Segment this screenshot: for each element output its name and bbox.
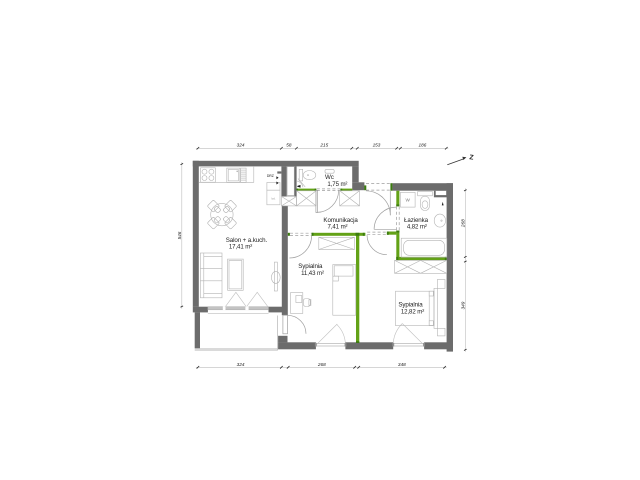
svg-text:Sypialnia: Sypialnia (398, 302, 423, 309)
svg-text:4,82 m²: 4,82 m² (407, 224, 427, 231)
svg-text:546: 546 (177, 231, 182, 239)
svg-text:7,41 m²: 7,41 m² (328, 224, 348, 231)
svg-text:349: 349 (460, 301, 465, 309)
svg-text:17,41 m²: 17,41 m² (229, 244, 252, 251)
svg-text:1,75 m²: 1,75 m² (327, 181, 347, 188)
svg-text:215: 215 (319, 143, 328, 148)
svg-text:268: 268 (317, 362, 326, 367)
svg-text:lod.: lod. (271, 197, 275, 201)
svg-text:DRZ: DRZ (267, 174, 274, 178)
svg-text:268: 268 (460, 219, 465, 228)
svg-text:58: 58 (286, 143, 292, 148)
svg-text:324: 324 (237, 143, 245, 148)
svg-text:12,82 m²: 12,82 m² (401, 309, 424, 316)
svg-text:11,43 m²: 11,43 m² (301, 270, 324, 277)
svg-text:186: 186 (418, 143, 426, 148)
svg-text:153: 153 (373, 143, 381, 148)
svg-text:348: 348 (398, 362, 406, 367)
svg-text:W: W (406, 198, 411, 203)
svg-text:Wc: Wc (325, 174, 334, 181)
svg-text:324: 324 (237, 362, 245, 367)
